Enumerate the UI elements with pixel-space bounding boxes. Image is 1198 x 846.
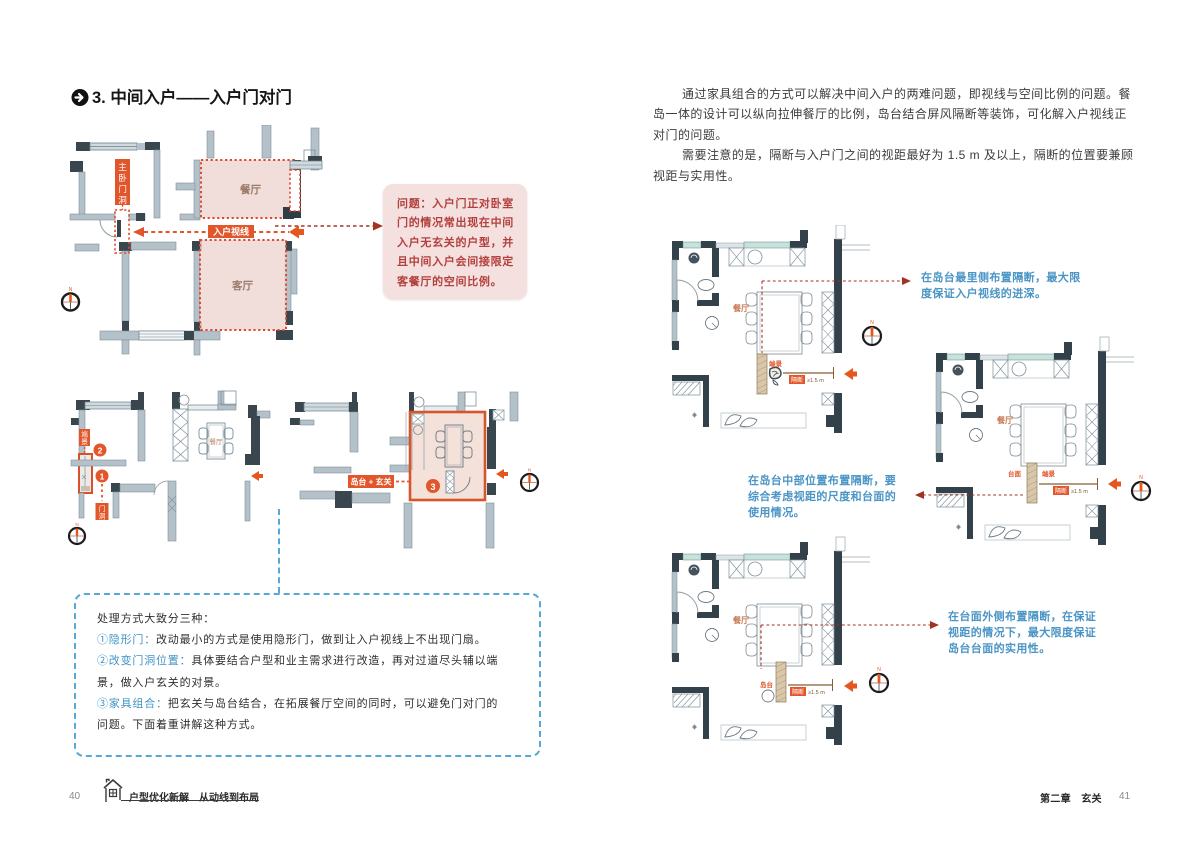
svg-text:门: 门 [118, 183, 127, 194]
svg-text:餐厅: 餐厅 [210, 437, 224, 446]
svg-text:入户视线: 入户视线 [212, 226, 249, 237]
svg-text:主: 主 [118, 161, 127, 172]
svg-text:1: 1 [100, 472, 105, 482]
svg-text:隔断: 隔断 [792, 688, 804, 696]
svg-text:N: N [75, 522, 78, 527]
svg-text:N: N [528, 468, 531, 473]
svg-text:餐厅: 餐厅 [239, 183, 261, 196]
svg-text:3: 3 [430, 482, 435, 492]
svg-text:岛台: 岛台 [760, 680, 774, 689]
svg-text:端: 端 [81, 430, 88, 439]
svg-text:岛台 + 玄关: 岛台 + 玄关 [350, 477, 391, 487]
svg-text:≥1.5 m: ≥1.5 m [807, 378, 824, 384]
svg-text:3. 中间入户——入户门对门: 3. 中间入户——入户门对门 [92, 87, 292, 107]
svg-text:餐厅: 餐厅 [732, 615, 749, 625]
svg-text:餐厅: 餐厅 [732, 303, 749, 313]
svg-text:卧: 卧 [118, 173, 127, 183]
svg-text:端景: 端景 [769, 359, 783, 368]
svg-text:洞: 洞 [99, 512, 106, 521]
svg-text:≥1.5 m: ≥1.5 m [808, 690, 825, 696]
svg-text:餐厅: 餐厅 [996, 415, 1013, 425]
svg-text:N: N [69, 287, 73, 293]
svg-text:隔断: 隔断 [1055, 487, 1067, 495]
svg-text:景: 景 [81, 438, 88, 446]
svg-text:洞: 洞 [118, 195, 127, 205]
svg-text:隔断: 隔断 [791, 376, 803, 384]
svg-text:2: 2 [98, 446, 103, 456]
svg-text:≥1.5 m: ≥1.5 m [1071, 489, 1088, 495]
svg-text:门: 门 [99, 504, 106, 513]
svg-text:台面: 台面 [1008, 469, 1022, 478]
svg-text:客厅: 客厅 [231, 279, 253, 292]
svg-text:端景: 端景 [1042, 469, 1056, 478]
